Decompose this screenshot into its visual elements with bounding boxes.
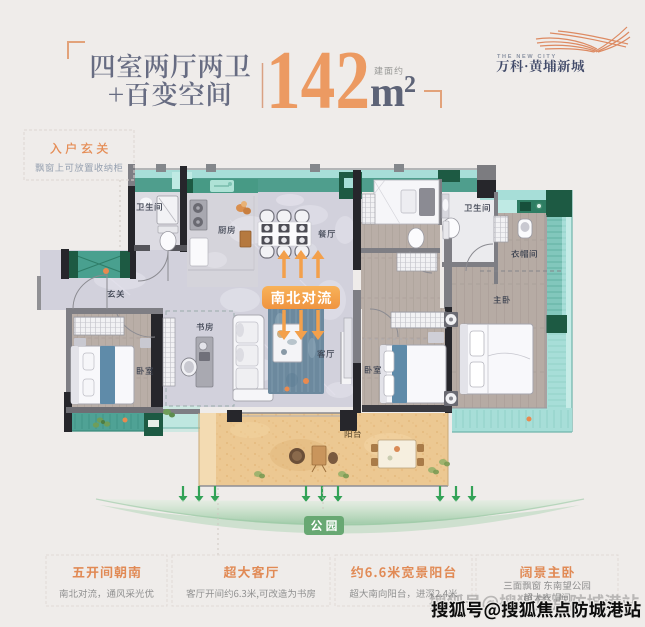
svg-text:THE NEW CITY: THE NEW CITY [497, 54, 557, 60]
svg-text:2: 2 [404, 72, 416, 98]
svg-text:142: 142 [266, 34, 370, 127]
svg-text:m: m [370, 70, 405, 116]
